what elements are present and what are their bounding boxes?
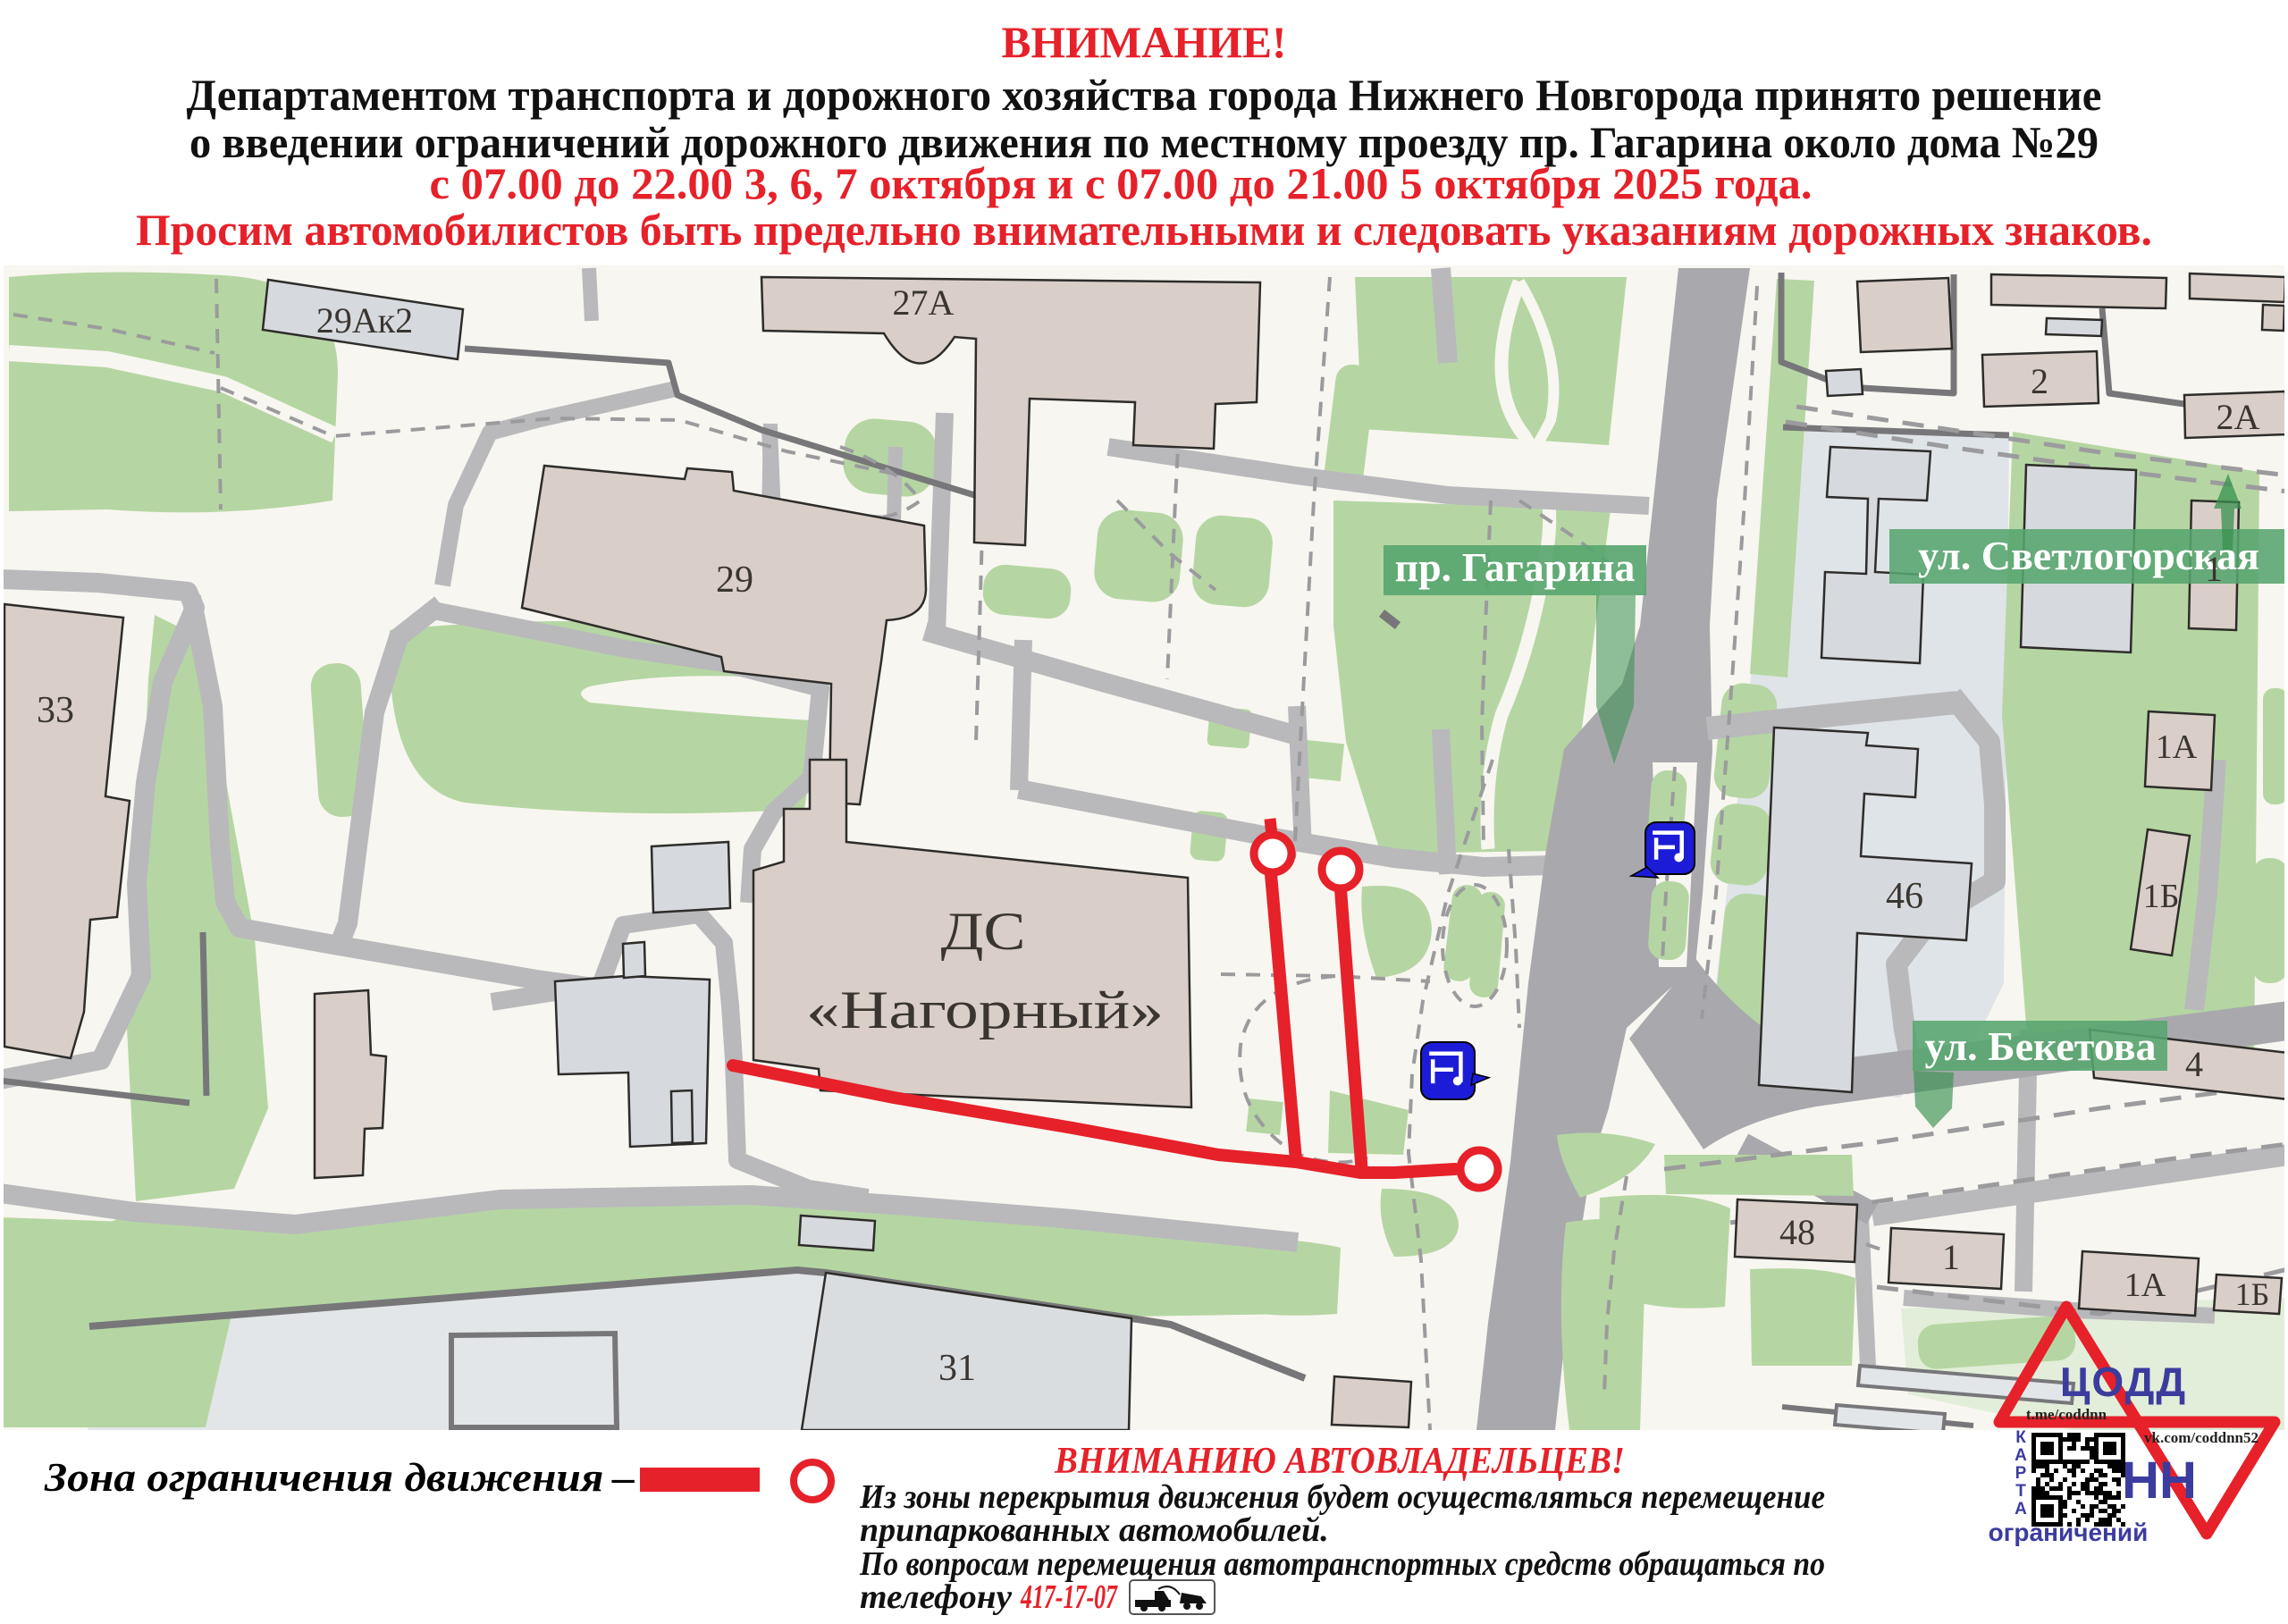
svg-text:2А: 2А — [2216, 397, 2260, 437]
svg-text:4: 4 — [2185, 1044, 2203, 1084]
svg-text:ограничений: ограничений — [1989, 1519, 2149, 1546]
svg-text:с 07.00 до 22.00 3, 6, 7 октяб: с 07.00 до 22.00 3, 6, 7 октября и с 07.… — [430, 158, 1813, 208]
svg-text:2: 2 — [2031, 361, 2048, 401]
svg-text:48: 48 — [1779, 1212, 1815, 1252]
svg-text:1: 1 — [1942, 1237, 1960, 1277]
svg-text:46: 46 — [1886, 876, 1923, 917]
svg-text:29Ак2: 29Ак2 — [316, 300, 413, 341]
svg-text:телефону: телефону — [860, 1578, 1012, 1616]
svg-text:1Б: 1Б — [2143, 878, 2180, 915]
svg-text:1: 1 — [2205, 549, 2223, 589]
svg-text:vk.com/coddnn52: vk.com/coddnn52 — [2144, 1429, 2259, 1446]
svg-text:ВНИМАНИЕ!: ВНИМАНИЕ! — [1002, 17, 1287, 67]
svg-text:ул. Бекетова: ул. Бекетова — [1925, 1023, 2157, 1069]
svg-text:ЦОДД: ЦОДД — [2060, 1359, 2187, 1405]
svg-text:Т: Т — [2015, 1482, 2026, 1501]
svg-text:По вопросам перемещения автотр: По вопросам перемещения автотранспортных… — [859, 1545, 1825, 1583]
svg-text:t.me/coddnn: t.me/coddnn — [2026, 1406, 2107, 1423]
svg-text:29: 29 — [716, 560, 753, 601]
svg-text:ВНИМАНИЮ АВТОВЛАДЕЛЬЦЕВ!: ВНИМАНИЮ АВТОВЛАДЕЛЬЦЕВ! — [1054, 1441, 1625, 1482]
svg-text:1А: 1А — [2156, 728, 2198, 766]
svg-text:К: К — [2015, 1428, 2026, 1447]
svg-text:Р: Р — [2015, 1464, 2027, 1483]
svg-text:33: 33 — [37, 690, 74, 731]
svg-text:НН: НН — [2122, 1452, 2197, 1510]
svg-text:1А: 1А — [2124, 1266, 2166, 1304]
svg-text:Просим автомобилистов быть пре: Просим автомобилистов быть предельно вни… — [136, 205, 2152, 255]
svg-text:ДС: ДС — [941, 902, 1026, 961]
svg-text:27А: 27А — [893, 282, 955, 323]
svg-text:Зона ограничения движения –: Зона ограничения движения – — [44, 1454, 635, 1500]
svg-text:1Б: 1Б — [2235, 1276, 2270, 1312]
svg-text:31: 31 — [938, 1348, 976, 1389]
svg-text:Из зоны перекрытия движения бу: Из зоны перекрытия движения будет осущес… — [859, 1478, 1825, 1516]
svg-text:А: А — [2015, 1500, 2027, 1519]
svg-text:417-17-07: 417-17-07 — [1020, 1578, 1118, 1616]
svg-text:припаркованных автомобилей.: припаркованных автомобилей. — [860, 1511, 1329, 1549]
svg-text:А: А — [2015, 1446, 2027, 1465]
svg-text:Департаментом транспорта и дор: Департаментом транспорта и дорожного хоз… — [187, 70, 2102, 120]
svg-text:пр. Гагарина: пр. Гагарина — [1395, 544, 1636, 590]
svg-text:«Нагорный»: «Нагорный» — [806, 980, 1164, 1039]
